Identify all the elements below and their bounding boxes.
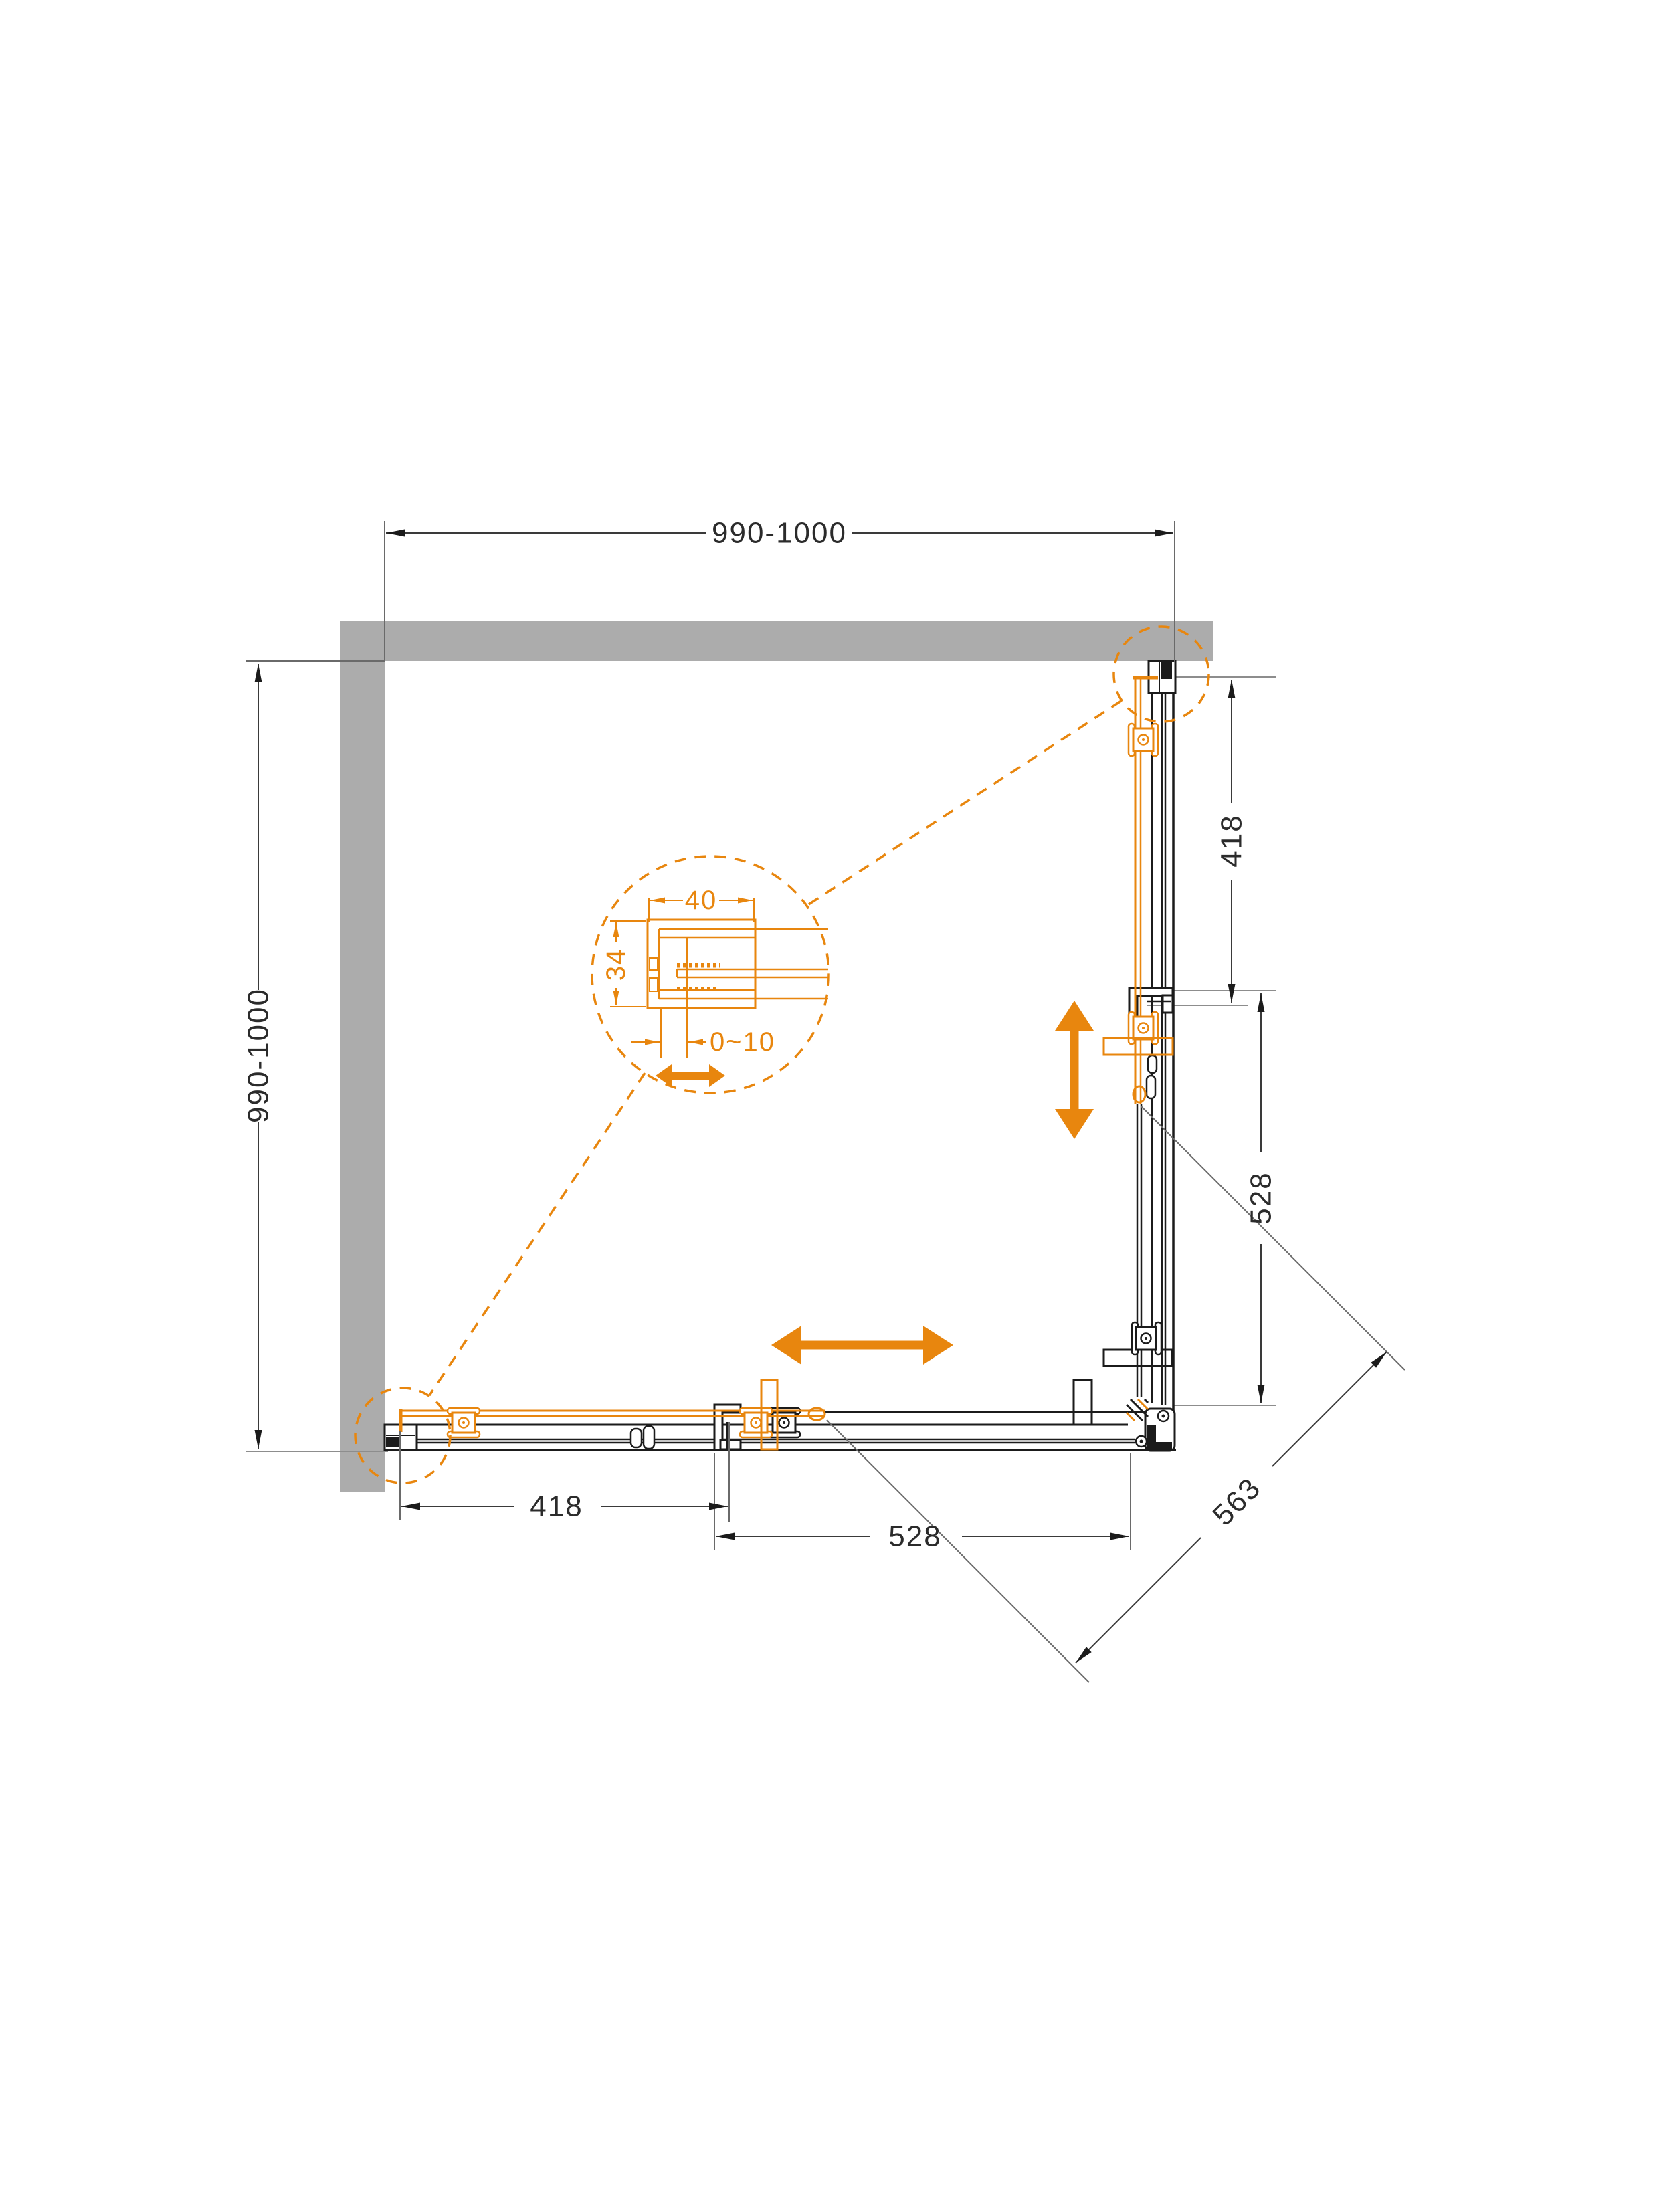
- support-bracket-bottom: [1074, 1380, 1092, 1425]
- slide-direction-arrow-vertical-icon: [1055, 1001, 1094, 1139]
- dim-bottom-528-label: 528: [888, 1520, 941, 1553]
- dimension-arrows: [255, 530, 1387, 1664]
- wall-left: [340, 621, 385, 1492]
- detail-dim-40-label: 40: [685, 886, 718, 915]
- corner-post: [1136, 1409, 1175, 1451]
- roller-door-bottom-2: [740, 1408, 772, 1437]
- walls: [340, 621, 1213, 1492]
- glass-clamp-bottom: [631, 1426, 654, 1449]
- dim-right-418-label: 418: [1215, 814, 1248, 867]
- dim-top-width-label: 990-1000: [712, 517, 847, 550]
- detail-dim-34-label: 34: [601, 948, 631, 981]
- dimension-lines: [258, 533, 1387, 1663]
- dim-bottom-418-label: 418: [530, 1490, 583, 1523]
- dim-left-depth-label: 990-1000: [242, 988, 275, 1123]
- roller-door-right-1: [1129, 724, 1158, 756]
- roller-door-bottom-1: [448, 1408, 480, 1437]
- extension-lines-gray: [246, 677, 1276, 1451]
- roller-door-right-2: [1129, 1012, 1158, 1044]
- wall-top: [340, 621, 1213, 661]
- detail-dim-0-10-label: 0~10: [710, 1027, 775, 1057]
- door-handles: [761, 1038, 1173, 1449]
- drawing-page: 990-1000 990-1000 418 528 418 528 563 40…: [0, 0, 1659, 2212]
- leader-to-bottom-left-corner: [429, 1073, 645, 1395]
- diagonal-extension-2: [827, 1420, 1089, 1682]
- wall-profile-detail: [648, 920, 828, 1008]
- dim-diagonal-563-label: 563: [1207, 1472, 1268, 1532]
- slide-direction-arrow-horizontal-icon: [771, 1326, 953, 1365]
- diagonal-extension-1: [1141, 1106, 1405, 1370]
- detail-circles: [355, 627, 1209, 1483]
- enclosure-frame: [385, 661, 1176, 1450]
- roller-fixed-right: [1132, 1322, 1161, 1354]
- glass-clamp-right: [1147, 1055, 1157, 1098]
- leader-to-top-right-corner: [809, 701, 1121, 904]
- dim-right-528-label: 528: [1245, 1171, 1278, 1224]
- roller-fixed-bottom: [768, 1408, 800, 1437]
